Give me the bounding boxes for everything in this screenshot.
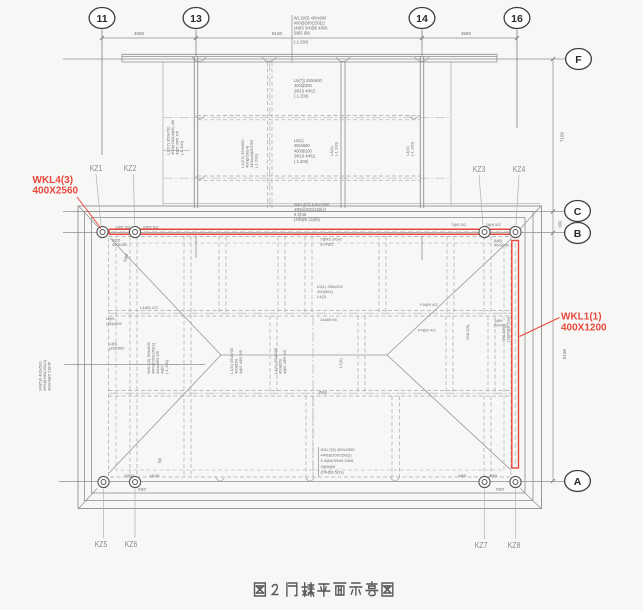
svg-text:5 4@5/3Φ45 3/6/6: 5 4@5/3Φ45 3/6/6: [321, 458, 355, 463]
svg-text:1@45: 1@45: [124, 473, 134, 478]
svg-text:(-1.200): (-1.200): [294, 94, 309, 99]
svg-text:(-2.280): (-2.280): [294, 40, 309, 45]
svg-text:(-1.100): (-1.100): [179, 140, 184, 155]
svg-text:3C4@2: 3C4@2: [320, 242, 334, 247]
svg-text:L4@5 CO: L4@5 CO: [140, 305, 158, 310]
svg-text:(2Φ@8.5(2x): (2Φ@8.5(2x): [321, 469, 345, 474]
svg-text:KZ5: KZ5: [95, 539, 107, 549]
svg-text:WKL1(1): WKL1(1): [561, 312, 602, 323]
svg-text:KZ7: KZ7: [475, 540, 487, 550]
svg-text:KZ6: KZ6: [125, 539, 137, 549]
svg-text:14a55 b5: 14a55 b5: [320, 317, 337, 322]
svg-text:F4@0 4/2: F4@0 4/2: [420, 302, 438, 307]
svg-text:KZ2: KZ2: [124, 163, 136, 173]
svg-text:(-1.200): (-1.200): [294, 159, 309, 164]
svg-text:1@45: 1@45: [149, 473, 159, 478]
svg-text:(35)x600: (35)x600: [106, 321, 123, 326]
svg-text:4@5: 4@5: [489, 473, 497, 478]
svg-text:(35)x600: (35)x600: [109, 346, 125, 351]
svg-text:4550: 4550: [461, 31, 472, 36]
svg-text:4@5 4Φ5 5/5: 4@5 4Φ5 5/5: [238, 349, 243, 374]
svg-text:11: 11: [96, 13, 107, 25]
svg-text:W4L7(3) 400x2060: W4L7(3) 400x2060: [321, 447, 356, 452]
svg-text:400X2560: 400X2560: [33, 186, 79, 197]
svg-text:7100: 7100: [560, 131, 565, 142]
svg-text:4@5 4Φ5 4/5: 4@5 4Φ5 4/5: [282, 349, 287, 374]
svg-text:A: A: [574, 476, 582, 488]
svg-text:4550: 4550: [134, 31, 145, 36]
svg-text:(-1.200): (-1.200): [254, 153, 259, 168]
svg-text:5190: 5190: [562, 348, 567, 359]
svg-text:WKL4(3): WKL4(3): [33, 175, 74, 186]
svg-text:F: F: [575, 54, 582, 66]
svg-text:9160: 9160: [272, 31, 283, 36]
svg-text:C: C: [574, 206, 582, 218]
svg-text:5@5: 5@5: [496, 487, 504, 492]
svg-text:900: 900: [558, 220, 563, 228]
svg-text:5@5 @6: 5@5 @6: [294, 31, 311, 36]
svg-text:(5b(): (5b(): [319, 390, 328, 395]
svg-text:(-1.100): (-1.100): [410, 141, 415, 156]
svg-text:3@5@6: 3@5@6: [321, 464, 337, 469]
svg-text:14: 14: [416, 13, 428, 25]
svg-text:L7(X): L7(X): [338, 358, 343, 368]
svg-text:400X1200: 400X1200: [561, 323, 607, 334]
svg-text:(-1.100): (-1.100): [334, 141, 339, 156]
svg-text:KZ1: KZ1: [90, 163, 102, 173]
svg-text:KZ3: KZ3: [473, 164, 485, 174]
svg-text:W4L3(5): W4L3(5): [465, 324, 470, 340]
svg-text:4@5: 4@5: [458, 473, 466, 478]
svg-text:13: 13: [190, 13, 202, 25]
svg-text:400x260: 400x260: [494, 243, 510, 248]
svg-text:KZ8: KZ8: [508, 540, 520, 550]
svg-text:B: B: [574, 228, 582, 240]
svg-text:400x4@5 5@45: 400x4@5 5@45: [46, 361, 51, 391]
svg-text:1@5 5/2: 1@5 5/2: [115, 224, 131, 229]
svg-text:(2@6@8.50x): (2@6@8.50x): [506, 316, 511, 342]
svg-text:2@5 5/2: 2@5 5/2: [143, 224, 159, 229]
svg-text:F4@0 4/2: F4@0 4/2: [418, 328, 436, 333]
svg-text:L4(2): L4(2): [317, 294, 327, 299]
svg-text:5@5: 5@5: [138, 487, 146, 492]
svg-text:16: 16: [511, 13, 523, 25]
svg-text:KZ4: KZ4: [513, 164, 525, 174]
svg-text:2@5 5/2: 2@5 5/2: [486, 222, 502, 227]
svg-text:4Φ6@200/150(2): 4Φ6@200/150(2): [321, 453, 353, 458]
svg-text:7@5 5/2: 7@5 5/2: [451, 222, 467, 227]
svg-text:400x260: 400x260: [112, 242, 128, 247]
svg-text:(-1.100): (-1.100): [164, 359, 169, 374]
